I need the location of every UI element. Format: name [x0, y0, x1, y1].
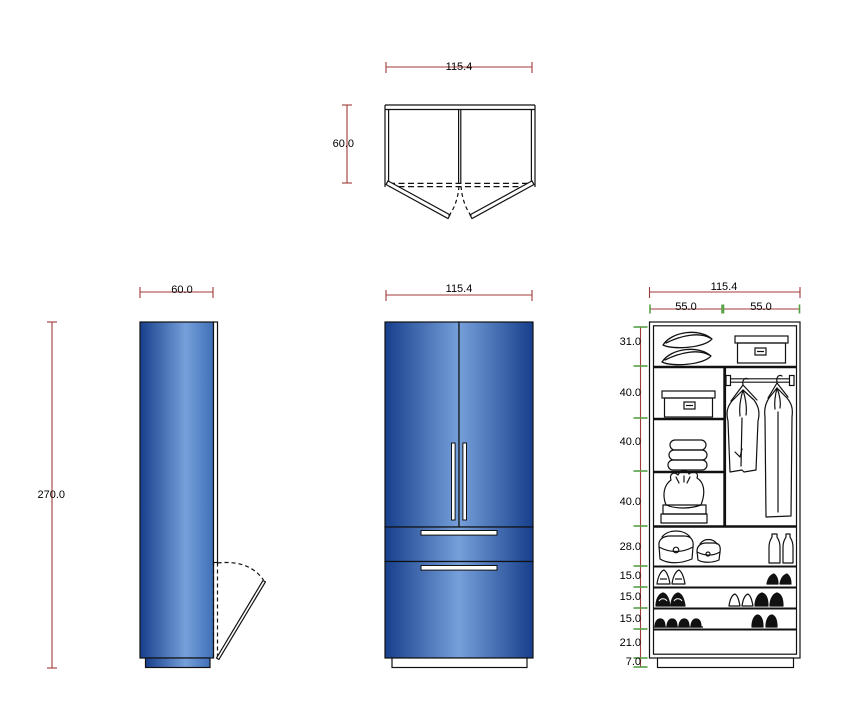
interior-section-dim-label: 31.0: [610, 336, 641, 348]
front-plinth: [392, 658, 527, 668]
folded-clothes-drawing: [668, 440, 707, 470]
handbags-drawing: [659, 531, 720, 563]
side-plinth: [146, 658, 211, 668]
front-view: [385, 290, 533, 668]
interior-section-dim-label: 40.0: [610, 496, 641, 508]
front-drawer-bottom-handle: [421, 566, 497, 571]
plan-cabinet-carcass: [385, 105, 535, 187]
front-door-right-handle: [463, 443, 467, 520]
drawing-canvas: [0, 0, 861, 728]
front-drawer-top-handle: [421, 531, 497, 536]
storage-box-shelf-drawing: [662, 391, 715, 417]
long-coat-drawing: [765, 375, 793, 517]
pillows-drawing: [662, 332, 712, 364]
side-door-closed-dashed: [214, 563, 218, 659]
interior-section-dim-label: 15.0: [610, 613, 641, 625]
front-drawer-bottom: [385, 562, 533, 659]
plan-door-swing-arcs: [448, 186, 472, 217]
side-view: [47, 287, 265, 668]
front-door-left: [385, 322, 459, 527]
interior-section-dim-label: 15.0: [610, 570, 641, 582]
side-door-edge-closed: [214, 322, 218, 563]
interior-plinth: [658, 658, 794, 668]
side-height-dim-label: 270.0: [35, 489, 65, 501]
slippers-drawing: [654, 615, 778, 627]
hanging-rod: [726, 376, 794, 386]
interior-view: [634, 287, 801, 668]
plan-width-dim-label: 115.4: [429, 61, 489, 73]
interior-section-dim-label: 28.0: [610, 541, 641, 553]
shoes-drawing: [656, 593, 783, 606]
plan-dimension-lines: [342, 62, 532, 183]
high-heels-drawing: [657, 570, 791, 584]
interior-section-dim-label: 7.0: [610, 656, 641, 668]
plan-doors-closed-dashed: [389, 183, 531, 186]
side-door-swing-arc: [218, 562, 264, 580]
storage-box-top-drawing: [735, 336, 788, 363]
side-width-dim-label: 60.0: [152, 284, 212, 296]
interior-section-dim-label: 21.0: [610, 637, 641, 649]
front-door-right: [459, 322, 533, 527]
interior-section-dim-label: 40.0: [610, 436, 641, 448]
front-width-dim-label: 115.4: [429, 283, 489, 295]
side-cabinet-body: [140, 322, 214, 658]
interior-section-dim-label: 15.0: [610, 591, 641, 603]
side-door-open: [217, 581, 266, 660]
laundry-bag-drawing: [661, 470, 707, 523]
interior-bay-left-dim-label: 55.0: [656, 301, 716, 313]
drawing-sheet: 115.4 60.0 60.0 270.0 115.4 115.4 55.0 5…: [0, 0, 861, 728]
plan-view: [342, 62, 535, 219]
interior-section-dim-label: 40.0: [610, 387, 641, 399]
plan-depth-dim-label: 60.0: [322, 138, 354, 150]
interior-dimension-ticks: [634, 305, 800, 668]
interior-width-dim-label: 115.4: [694, 281, 754, 293]
interior-bay-right-dim-label: 55.0: [731, 301, 791, 313]
front-door-left-handle: [452, 443, 456, 520]
jacket-drawing: [727, 378, 759, 472]
bottles-drawing: [769, 534, 793, 563]
